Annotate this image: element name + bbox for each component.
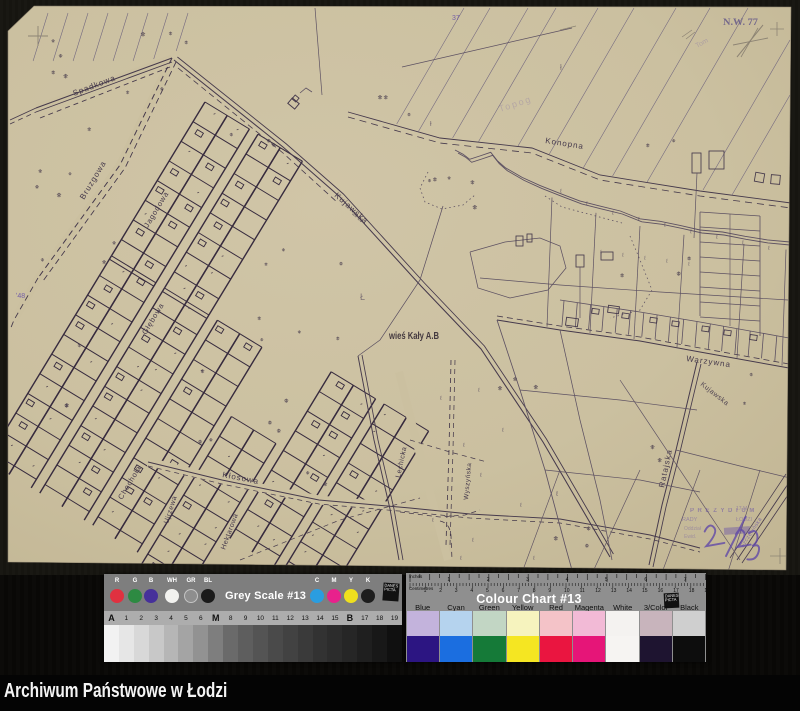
svg-text:Ł: Ł (360, 292, 365, 302)
svg-text:Ewid.: Ewid. (684, 534, 696, 540)
svg-text:ʹ48: ʹ48 (16, 292, 25, 300)
svg-text:ℓ: ℓ (664, 222, 666, 229)
svg-text:ℓ: ℓ (472, 537, 474, 544)
svg-text:ℓ: ℓ (716, 234, 718, 241)
svg-text:5: 5 (605, 577, 608, 583)
svg-text:16: 16 (658, 588, 664, 592)
svg-text:RADY: RADY (682, 517, 698, 523)
svg-text:ℓ: ℓ (768, 245, 770, 252)
svg-text:ℓ: ℓ (460, 555, 462, 562)
svg-text:ℓ: ℓ (742, 240, 744, 247)
svg-text:17: 17 (673, 588, 679, 592)
svg-text:ℓ: ℓ (560, 188, 562, 195)
svg-text:N.W. 77: N.W. 77 (723, 17, 759, 27)
svg-text:ℓ: ℓ (622, 252, 624, 259)
svg-text:2: 2 (487, 577, 490, 583)
svg-text:19: 19 (704, 588, 706, 592)
svg-text:ℓ: ℓ (480, 472, 482, 479)
svg-text:ℓ: ℓ (432, 517, 434, 524)
svg-text:ℓ: ℓ (612, 210, 614, 217)
svg-text:18: 18 (689, 588, 695, 592)
svg-text:1: 1 (447, 577, 450, 583)
svg-text:wieś Kały A.B: wieś Kały A.B (388, 330, 439, 342)
svg-text:ℓ: ℓ (533, 555, 535, 562)
svg-text:ℓ: ℓ (638, 216, 640, 223)
svg-text:ℓ: ℓ (586, 200, 588, 207)
svg-text:ℓ: ℓ (440, 395, 442, 402)
svg-text:ℓ: ℓ (502, 427, 504, 434)
svg-text:ℓ: ℓ (463, 442, 465, 449)
svg-text:ℓ: ℓ (478, 387, 480, 394)
svg-text:7: 7 (684, 577, 687, 583)
svg-text:6: 6 (644, 577, 647, 583)
svg-text:4: 4 (566, 577, 569, 583)
svg-text:ℓ: ℓ (688, 261, 690, 268)
svg-text:ℓ: ℓ (600, 249, 602, 256)
svg-text:ł: ł (560, 63, 562, 72)
svg-text:ℓ: ℓ (520, 502, 522, 509)
svg-text:3: 3 (526, 577, 529, 583)
svg-text:Oddział: Oddział (684, 526, 702, 532)
svg-text:37: 37 (452, 15, 460, 22)
svg-text:ℓ: ℓ (690, 228, 692, 235)
svg-text:17 M: 17 M (736, 506, 747, 512)
svg-text:ℓ: ℓ (644, 255, 646, 262)
svg-text:ℓ: ℓ (666, 258, 668, 265)
